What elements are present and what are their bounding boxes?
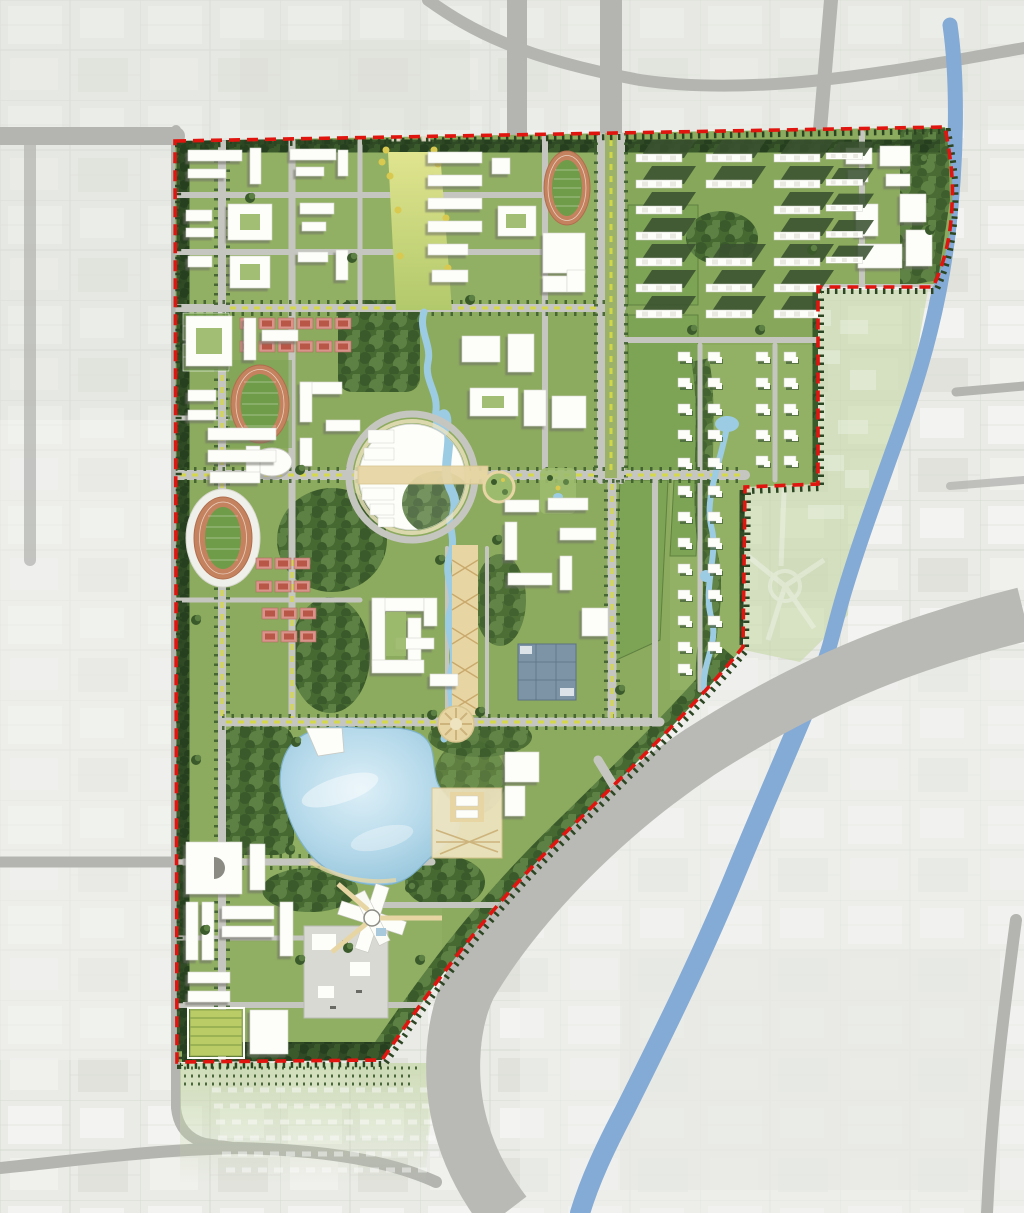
blue-roof-complex [518,644,576,700]
terraced-garden [188,1008,244,1058]
boulevard-median [605,133,617,478]
masterplan-svg [0,0,1024,1213]
round-garden [484,472,514,502]
stadium-grandstand [186,489,260,587]
masterplan-canvas [0,0,1024,1213]
esplanade [452,545,478,715]
radial-plaza-large [438,706,474,742]
stadium-north [544,151,590,225]
temple-garden-complex [432,788,502,858]
road-east-1 [956,386,1024,392]
